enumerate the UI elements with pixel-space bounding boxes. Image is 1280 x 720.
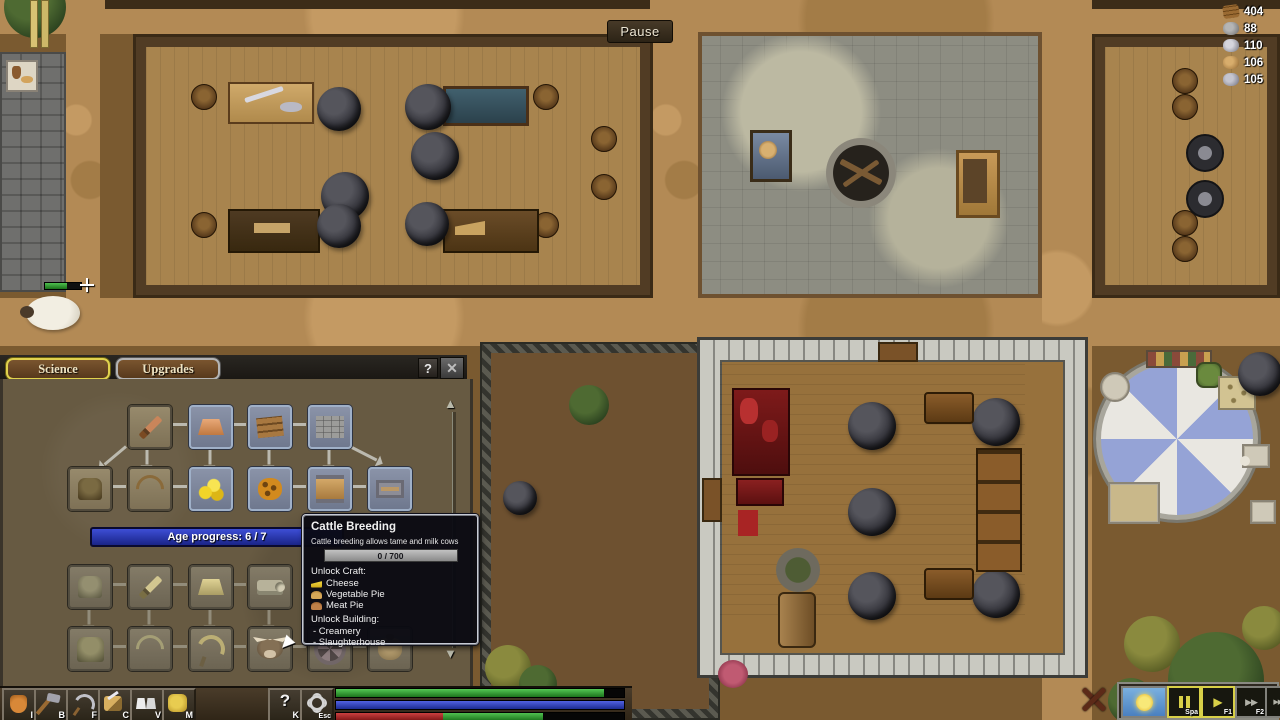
unlock-craft-heading: Unlock Craft:: [311, 566, 470, 577]
tech-node-leather-armor[interactable]: [68, 467, 112, 511]
plate-armor-icon: [77, 637, 104, 662]
tech-arrow: [209, 449, 212, 465]
crate[interactable]: [1250, 500, 1276, 524]
fast-forward-icon: ▶▶: [1245, 698, 1257, 707]
villagers-icon-2: [146, 698, 156, 709]
tech-node-sickle[interactable]: [189, 627, 233, 671]
tech-arrow: [146, 449, 149, 465]
copper-ingot-icon: [198, 419, 224, 435]
wooden-sword-icon: [138, 415, 162, 439]
wall-edge-top: [105, 0, 650, 9]
meat-rack[interactable]: [736, 478, 784, 506]
fastest-speed-button[interactable]: ▶▶▶ F3: [1265, 686, 1280, 718]
silver-ore-icon: [1223, 73, 1239, 86]
gate-left[interactable]: [702, 478, 722, 522]
resource-list: 404 88 110 106 105: [1182, 3, 1272, 88]
tech-node-fabric[interactable]: [248, 565, 292, 609]
clay-icon: [1223, 56, 1239, 69]
hotkey-label: I: [30, 710, 33, 720]
barrel-rack[interactable]: [976, 448, 1022, 572]
workshop-floor: [146, 47, 640, 285]
tech-arrow: [209, 609, 212, 625]
saw-icon: [455, 221, 485, 235]
fire-pit-stones[interactable]: [848, 402, 896, 450]
tech-node-steel-sword[interactable]: [128, 565, 172, 609]
trade-sign[interactable]: [6, 60, 38, 92]
well[interactable]: [750, 130, 792, 182]
tech-arrow: [110, 645, 126, 648]
barrel[interactable]: [591, 174, 617, 200]
crate[interactable]: [1100, 372, 1130, 402]
stone-wall-icon: [316, 416, 344, 438]
stone-pile[interactable]: [317, 87, 361, 131]
inventory-button[interactable]: I: [2, 688, 36, 720]
building-item: - Creamery: [311, 626, 470, 637]
fire-pit-stones[interactable]: [848, 488, 896, 536]
longbow-icon: [130, 629, 170, 669]
barrel[interactable]: [533, 84, 559, 110]
status-bar-green: [335, 688, 625, 698]
tech-node-copper-ingot[interactable]: [189, 405, 233, 449]
game-screen: Pause 404 88 110 106 105 Science Upgrade…: [0, 0, 1280, 720]
tech-arrow: [268, 449, 271, 465]
tech-arrow: [290, 423, 306, 426]
barrel[interactable]: [191, 84, 217, 110]
tech-node-loom[interactable]: [368, 467, 412, 511]
craft-item-label: Meat Pie: [326, 600, 364, 611]
flower-bush: [718, 660, 748, 688]
leather-armor-icon: [78, 478, 102, 500]
tech-node-tanned-leather[interactable]: [308, 467, 352, 511]
stone-icon: [1223, 22, 1239, 35]
tech-arrow: [110, 485, 126, 488]
craft-item: Vegetable Pie: [311, 589, 470, 600]
campfire[interactable]: [826, 138, 896, 208]
tech-arrow: [290, 485, 306, 488]
resource-row: 88: [1182, 20, 1272, 37]
tanned-leather-icon: [316, 475, 344, 503]
villagers-icon: [136, 698, 146, 709]
tech-arrow: [171, 583, 187, 586]
build-hammer-icon: [36, 699, 51, 715]
sword-blade: [244, 86, 284, 103]
bush: [569, 385, 609, 425]
chest[interactable]: [924, 392, 974, 424]
crossed-arrows-icon[interactable]: [1078, 684, 1110, 716]
rock[interactable]: [1238, 352, 1280, 396]
stone-building: [700, 340, 1085, 675]
fast-speed-button[interactable]: ▶▶ F2: [1235, 686, 1267, 718]
barrel[interactable]: [1172, 94, 1198, 120]
grinder[interactable]: [1186, 134, 1224, 172]
fire-pit-stones[interactable]: [848, 572, 896, 620]
inventory-bag-icon: [10, 695, 27, 713]
hotkey-label: F1: [1224, 709, 1232, 716]
fabric-icon: [257, 580, 283, 595]
steel-sword-icon: [138, 575, 162, 599]
grinder[interactable]: [1186, 180, 1224, 218]
build-button[interactable]: B: [34, 688, 68, 720]
chicken[interactable]: [1240, 456, 1250, 466]
tech-arrow: [88, 609, 91, 625]
unlock-building-heading: Unlock Building:: [311, 614, 470, 625]
resource-row: 105: [1182, 71, 1272, 88]
villagers-button[interactable]: V: [130, 688, 164, 720]
play-speed-button[interactable]: ▶ F1: [1201, 686, 1235, 718]
help-button[interactable]: ?: [418, 358, 438, 378]
status-bar-red-green: [335, 712, 625, 720]
resource-row: 110: [1182, 37, 1272, 54]
fenced-field: [482, 344, 718, 718]
pole: [30, 0, 38, 48]
tech-arrow: [171, 485, 187, 488]
honeycomb-icon: [258, 478, 282, 500]
cart[interactable]: [956, 150, 1000, 218]
resource-value: 88: [1244, 23, 1272, 35]
meat: [740, 398, 758, 424]
resource-value: 110: [1244, 40, 1272, 52]
tech-node-stone-wall[interactable]: [308, 405, 352, 449]
pole: [41, 0, 49, 48]
iron-ore-icon: [1223, 39, 1239, 52]
map-icon: [168, 694, 187, 712]
close-button[interactable]: ✕: [440, 357, 464, 379]
barrel[interactable]: [1172, 236, 1198, 262]
cattle-breeding-tooltip: Cattle Breeding Cattle breeding allows t…: [302, 514, 479, 645]
bow-icon: [130, 469, 170, 509]
pause-bars-icon: [1179, 696, 1190, 708]
tech-node-planks[interactable]: [248, 405, 292, 449]
hotkey-label: K: [293, 710, 300, 720]
colony-status-bars: [335, 688, 625, 720]
stone-pile[interactable]: [405, 202, 449, 246]
loom-icon: [376, 480, 404, 498]
water-tank[interactable]: [443, 86, 529, 126]
craft-item: Meat Pie: [311, 600, 470, 611]
research-progress-bar: 0 / 700: [324, 549, 458, 562]
fastest-forward-icon: ▶▶▶: [1273, 699, 1280, 706]
vegetable-pie-icon: [311, 591, 322, 599]
tech-arrow: [171, 423, 187, 426]
resource-row: 106: [1182, 54, 1272, 71]
tech-arrow: [171, 645, 187, 648]
barrel[interactable]: [191, 212, 217, 238]
tree: [1242, 606, 1280, 650]
cheese-icon: [311, 580, 322, 588]
coins-icon: [197, 477, 225, 501]
craft-button[interactable]: C: [98, 688, 132, 720]
road-center-vertical: [652, 0, 698, 300]
tech-node-bow[interactable]: [128, 467, 172, 511]
sheep-head: [20, 306, 34, 318]
barrel[interactable]: [591, 126, 617, 152]
vase-icon: [12, 66, 21, 79]
move-cursor-icon: [80, 278, 94, 292]
tech-arrow: [328, 449, 331, 465]
stone-pile[interactable]: [503, 481, 537, 515]
building-item: - Slaughterhouse: [311, 637, 470, 648]
tech-node-wooden-sword[interactable]: [128, 405, 172, 449]
hotkey-label: M: [186, 710, 194, 720]
sun-icon: [1136, 694, 1153, 711]
tab-science[interactable]: Science: [6, 358, 110, 380]
tech-arrow: [148, 609, 151, 625]
stone-pile[interactable]: [317, 204, 361, 248]
tech-arrow: [350, 485, 366, 488]
red-carpet: [738, 510, 758, 536]
crate-stack[interactable]: [1108, 482, 1160, 524]
cart-bed: [963, 159, 987, 203]
tech-arrow: [268, 609, 271, 625]
tab-upgrades[interactable]: Upgrades: [116, 358, 220, 380]
craft-item: Cheese: [311, 578, 470, 589]
tech-node-coins[interactable]: [189, 467, 233, 511]
tech-node-honeycomb[interactable]: [248, 467, 292, 511]
resource-value: 404: [1244, 6, 1272, 18]
helmet: [280, 102, 302, 112]
game-speed-panel: Spa ▶ F1 ▶▶ F2 ▶▶▶ F3: [1117, 682, 1279, 720]
tech-node-longbow[interactable]: [128, 627, 172, 671]
resource-value: 105: [1244, 74, 1272, 86]
gear-icon: [309, 695, 325, 711]
stone-pile[interactable]: [405, 84, 451, 130]
road-left-vertical: [66, 0, 100, 300]
tech-arrow: [110, 583, 126, 586]
meat: [762, 420, 778, 442]
chain-armor-icon: [78, 576, 102, 598]
fire-pit-stones[interactable]: [972, 398, 1020, 446]
sheep-health-bar: [44, 282, 82, 290]
hotkey-label: V: [155, 710, 161, 720]
question-icon: ?: [270, 691, 300, 711]
workshop-building: [133, 34, 653, 298]
hotkey-label: C: [123, 710, 130, 720]
tooltip-description: Cattle breeding allows tame and milk cow…: [311, 537, 470, 546]
farm-button[interactable]: F: [66, 688, 100, 720]
scroll-up-icon[interactable]: ▲: [444, 396, 457, 411]
scroll-down-icon[interactable]: ▼: [444, 646, 457, 661]
day-night-button[interactable]: [1121, 686, 1167, 718]
tech-node-gold-ingot[interactable]: [189, 565, 233, 609]
well-bucket: [759, 141, 777, 159]
craft-item-label: Vegetable Pie: [326, 589, 385, 600]
weapon-bench[interactable]: [228, 82, 314, 124]
plank-on-bench: [254, 223, 290, 233]
cattle-breeding-icon: [257, 639, 283, 659]
sickle-icon: [193, 631, 229, 667]
stone-plaza: [698, 32, 1042, 298]
pause-indicator[interactable]: Pause: [607, 20, 673, 43]
sheep[interactable]: [26, 296, 80, 330]
logs-icon: [1222, 4, 1240, 19]
gold-ingot-icon: [198, 579, 224, 595]
hotkey-label: Esc: [319, 713, 331, 720]
tech-node-plate-armor[interactable]: [68, 627, 112, 671]
hotkey-label: F: [92, 710, 98, 720]
chest[interactable]: [924, 568, 974, 600]
settings-button[interactable]: Esc: [300, 688, 334, 720]
resource-value: 106: [1244, 57, 1272, 69]
craft-item-label: Cheese: [326, 578, 359, 589]
play-icon: ▶: [1213, 696, 1222, 708]
saw-bench[interactable]: [443, 209, 539, 253]
help-hotkeys-button[interactable]: ? K: [268, 688, 302, 720]
tooltip-title: Cattle Breeding: [311, 521, 470, 533]
fire-pit-stones[interactable]: [972, 570, 1020, 618]
workbench[interactable]: [228, 209, 320, 253]
hotkey-label: B: [59, 710, 66, 720]
moss-fire-ring[interactable]: [776, 548, 820, 592]
pause-speed-button[interactable]: Spa: [1167, 686, 1201, 718]
planks-icon: [256, 416, 284, 439]
wood-stump[interactable]: [778, 592, 816, 648]
tech-node-chain-armor[interactable]: [68, 565, 112, 609]
map-button[interactable]: M: [162, 688, 196, 720]
bread-icon: [21, 76, 33, 83]
butcher-table[interactable]: [732, 388, 790, 476]
hotkey-label: Spa: [1185, 709, 1198, 716]
hotkey-label: F2: [1256, 709, 1264, 716]
gate-top[interactable]: [878, 342, 918, 362]
meat-pie-icon: [311, 602, 322, 610]
status-bar-blue: [335, 700, 625, 710]
stone-pile[interactable]: [411, 132, 459, 180]
resource-row: 404: [1182, 3, 1272, 20]
